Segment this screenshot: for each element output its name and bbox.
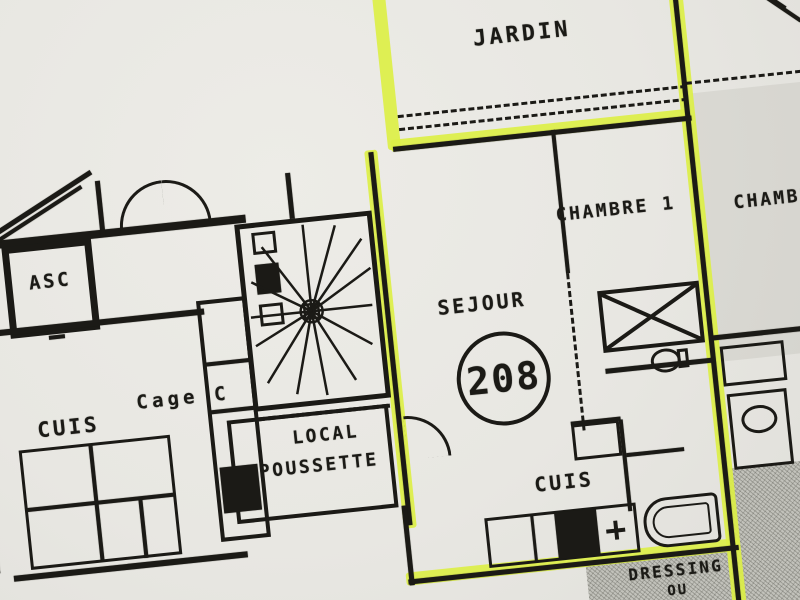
unit-number: 208 bbox=[464, 353, 543, 405]
kitchen-sink-block bbox=[554, 509, 601, 559]
unit-number-badge: 208 bbox=[452, 327, 555, 430]
wall bbox=[626, 447, 684, 457]
floorplan-canvas: ASC LOCAL bbox=[0, 0, 800, 600]
window-dashed-line bbox=[686, 69, 800, 85]
closet-x-icon bbox=[597, 281, 705, 353]
room-label-sejour: SEJOUR bbox=[411, 284, 553, 323]
floorplan-scan: ASC LOCAL bbox=[0, 0, 800, 600]
stairwell-box bbox=[234, 210, 391, 411]
spiral-stair-icon bbox=[240, 216, 386, 406]
room-label-chambre1: CHAMBRE 1 bbox=[530, 190, 701, 229]
wall bbox=[393, 115, 692, 151]
plus-mark-icon bbox=[605, 520, 626, 541]
area-label-jardin: JARDIN bbox=[441, 13, 603, 55]
wall bbox=[95, 181, 106, 236]
kitchen-unit bbox=[571, 420, 623, 461]
door-arc-icon bbox=[115, 180, 166, 231]
toilet-tank-icon bbox=[677, 348, 690, 368]
wall bbox=[285, 173, 295, 219]
room-label-cuis-main: CUIS bbox=[498, 463, 630, 500]
wall-angled bbox=[0, 170, 92, 234]
bathtub-icon bbox=[641, 492, 722, 550]
wall bbox=[49, 334, 65, 340]
wall bbox=[551, 130, 570, 274]
closet-cross-lines bbox=[602, 285, 701, 349]
partition-dashed-line bbox=[566, 273, 585, 430]
door-arc-icon bbox=[161, 175, 212, 226]
vanity-unit bbox=[720, 340, 788, 386]
highlight-wall-jardin-left bbox=[363, 0, 401, 150]
bathtub-inner bbox=[651, 502, 712, 540]
